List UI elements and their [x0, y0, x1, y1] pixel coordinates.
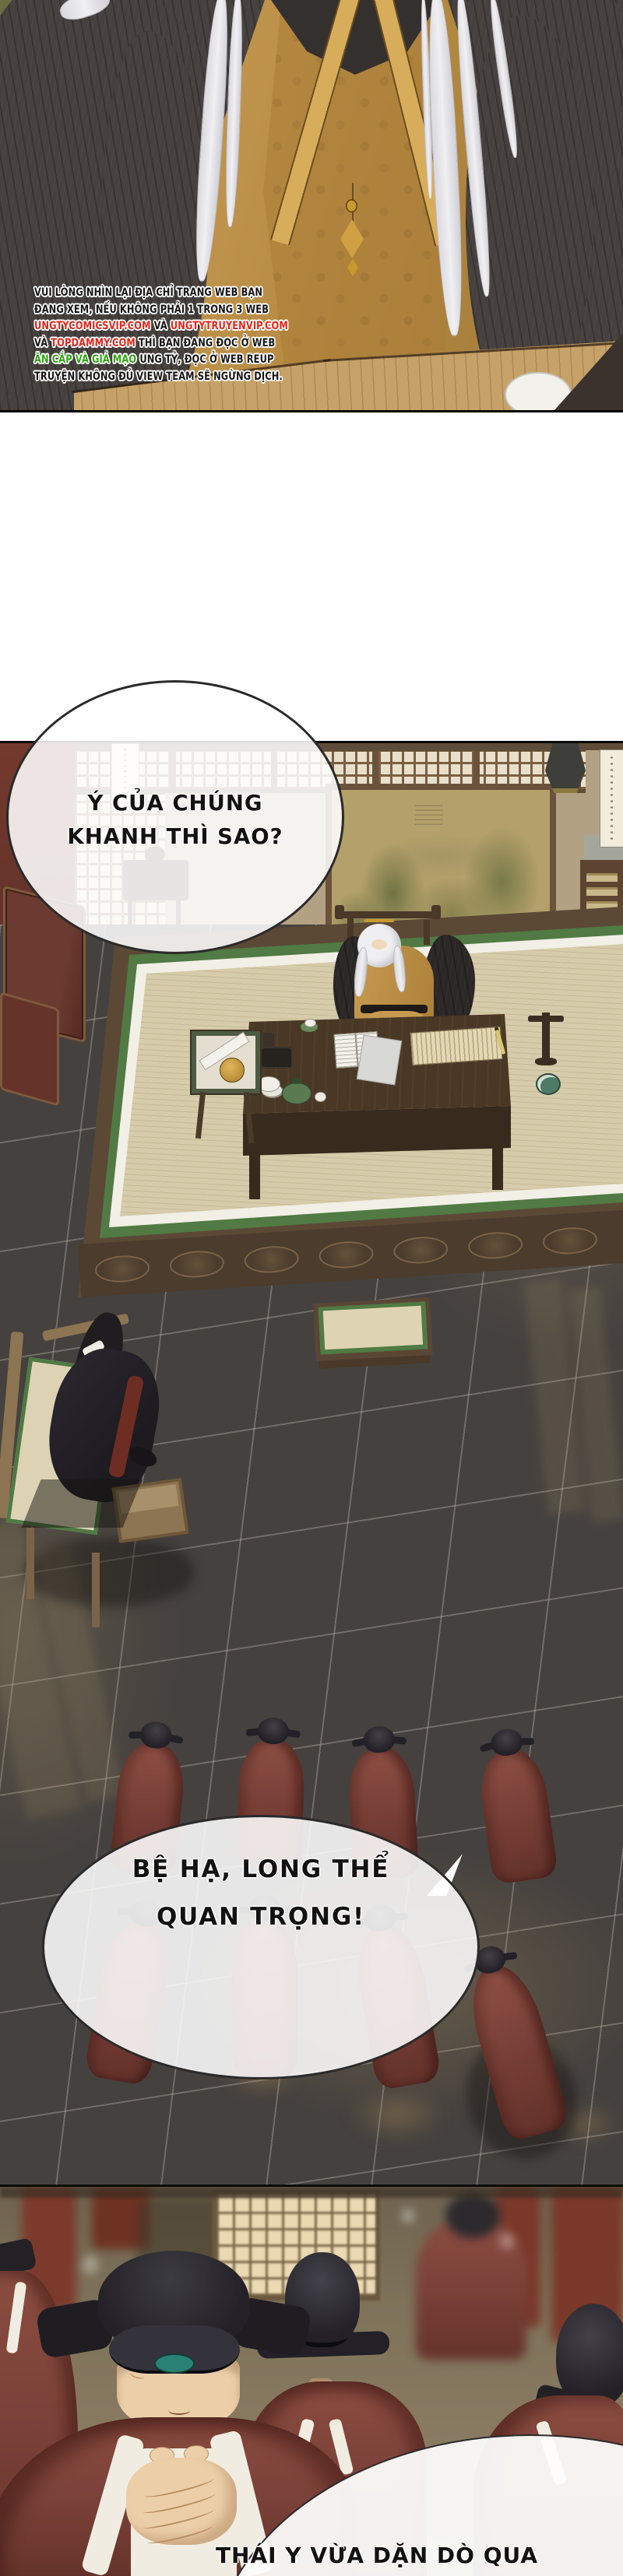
blurred-official-mid-hat [445, 2193, 500, 2238]
carved-medallion [542, 1226, 598, 1255]
comic-page: VUI LÒNG NHÌN LẠI ĐỊA CHỈ TRANG WEB BẠNĐ… [0, 0, 623, 2576]
desk-teapot [282, 1083, 311, 1104]
desk-white-ball [315, 1092, 326, 1102]
bubble-line: QUAN TRỌNG! [44, 1893, 477, 1941]
throne-chair-finial-right [431, 905, 441, 919]
incense-stand-base [535, 1058, 557, 1065]
bubble-line: Ý CỦA CHÚNG [9, 787, 342, 820]
notice-line: UNGTYCOMICSVIP.COM VÀ UNGTYTRUYENVIP.COM [34, 318, 290, 335]
desk-cup-stack [257, 1076, 280, 1092]
bubble-line: KHANH THÌ SAO? [9, 820, 342, 854]
speech-bubble-2: BỆ HẠ, LONG THỂ QUAN TRỌNG! [42, 1815, 480, 2079]
calligraphy-plaque-right [600, 749, 623, 848]
carved-medallion [244, 1244, 300, 1274]
carved-medallion [319, 1240, 375, 1269]
bench-leg-2 [92, 1553, 100, 1627]
throne-chair-rail [340, 911, 436, 918]
bokeh-dot [500, 2234, 514, 2249]
bubble-line: BỆ HẠ, LONG THỂ [44, 1846, 477, 1893]
bokeh-dot [83, 2255, 98, 2274]
speech-bubble-3-text: THÁI Y VỪA DẶN DÒ QUA [212, 2543, 542, 2569]
throne-chair-finial-left [335, 905, 344, 919]
official-right-hat [556, 2304, 623, 2408]
official-front-hat-ornament [154, 2353, 195, 2374]
carved-medallion [94, 1254, 150, 1283]
notice-line: ĐANG XEM, NẾU KHÔNG PHẢI 1 TRONG 3 WEB [34, 302, 290, 319]
speech-bubble-2-text: BỆ HẠ, LONG THỂ QUAN TRỌNG! [44, 1846, 477, 1941]
step-stool [313, 1297, 433, 1361]
desk-bamboo-scroll [410, 1027, 503, 1065]
notice-line: TRUYỆN KHÔNG ĐỦ VIEW TEAM SẼ NGỪNG DỊCH. [34, 369, 290, 386]
desk-teapot-lid [293, 1078, 301, 1084]
speech-bubble-1: Ý CỦA CHÚNG KHANH THÌ SAO? [6, 680, 344, 954]
carved-medallion [392, 1235, 449, 1265]
notice-line: VÀ TOPDAMMY.COM THÌ BẠN ĐANG ĐỌC Ở WEB [34, 335, 290, 353]
pendant-bead [346, 199, 357, 212]
hanging-lamp [545, 743, 586, 793]
desk-brush-stand [263, 1033, 274, 1048]
desk-inkstone [260, 1047, 293, 1069]
notice-line: ĂN CẮP VÀ GIẢ MẠO UNG TỶ, ĐỌC Ở WEB REUP [34, 352, 290, 369]
desk-leg-right [492, 1146, 503, 1190]
dark-top-beam [0, 2187, 623, 2198]
official-front-mouth [168, 2406, 190, 2415]
speech-bubble-1-text: Ý CỦA CHÚNG KHANH THÌ SAO? [9, 787, 342, 854]
desk-cup-on-coaster [304, 1019, 316, 1027]
panel-emperor-closeup: VUI LÒNG NHÌN LẠI ĐỊA CHỈ TRANG WEB BẠNĐ… [0, 0, 623, 412]
bench-leg-1 [26, 1528, 34, 1599]
desk-paper-sheet [357, 1034, 402, 1085]
floor-shadow-square [21, 1479, 142, 1528]
carved-medallion [169, 1249, 225, 1279]
emperor-hairpin [364, 919, 394, 922]
bokeh-dot [402, 2209, 414, 2223]
bench-shadow [23, 1537, 195, 1607]
emperor-forehead [371, 939, 387, 949]
desk-leg-left [249, 1154, 260, 1199]
red-chair-row-2 [0, 991, 59, 1107]
notice-line: VUI LÒNG NHÌN LẠI ĐỊA CHỈ TRANG WEB BẠN [34, 285, 290, 302]
carved-medallion [467, 1230, 523, 1260]
lion-incense-burner [220, 1058, 245, 1083]
translator-notice: VUI LÒNG NHÌN LẠI ĐỊA CHỈ TRANG WEB BẠNĐ… [34, 285, 346, 386]
step-stool-mat [323, 1306, 423, 1350]
bubble-line: THÁI Y VỪA DẶN DÒ QUA [212, 2543, 542, 2569]
jade-ornament [536, 1073, 561, 1095]
official-hat [257, 1717, 289, 1744]
incense-stand-arm [528, 1016, 564, 1022]
